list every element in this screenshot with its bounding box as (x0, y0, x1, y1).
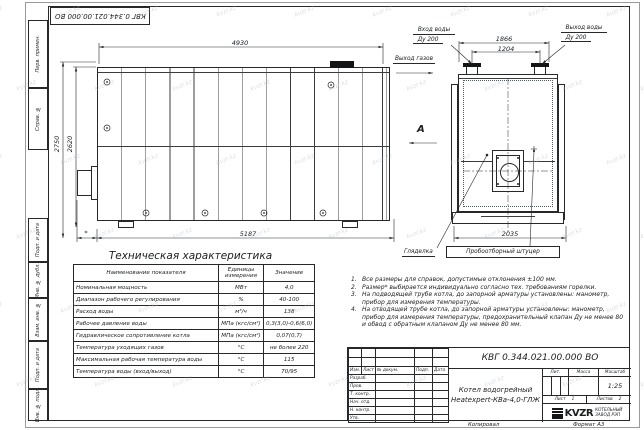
water-outlet-dn: Ду 200 (561, 35, 591, 43)
dim-burner-star: * (80, 229, 92, 237)
boiler-front-view (97, 67, 390, 221)
title-block-change-table: Изм. Лист № докум. Подп. Дата Разраб. Пр… (348, 348, 449, 423)
side-channel-right (558, 84, 565, 220)
margin-cell-perv-primen: Перв. примен. (28, 20, 48, 88)
gas-outlet-stub (330, 61, 354, 68)
note-2: 2.Размер* выбирается индивидуально согла… (351, 284, 625, 292)
margin-cell-inv-dubl: Инв. № дубл. (28, 262, 48, 298)
burner-mount-plate (77, 170, 92, 196)
note-3: 3.На подводящей трубе котла, до запорной… (351, 291, 625, 306)
dim-1204: 1204 (494, 45, 518, 53)
dim-2750: 2750 (53, 129, 61, 159)
copied-label: Копировал (468, 422, 499, 428)
format-label: Формат А3 (573, 422, 604, 428)
front-foot-left (118, 221, 134, 228)
doc-number: КВГ 0.344.021.00.000 ВО (449, 348, 631, 369)
note-4: 4.На отводящей трубе котла, до запорной … (351, 306, 625, 329)
title-block-right: Лит. Масса Масштаб 1:25 Лист1 Листов2 (543, 369, 631, 422)
view-a-letter: А (417, 124, 425, 135)
margin-cell-sprav-no: Справ. № (28, 88, 48, 150)
notes-list: 1.Все размеры для справок, допустимые от… (351, 276, 625, 329)
scale-label: Масштаб (599, 369, 631, 377)
spec-header-units: Единицы измерения (219, 265, 264, 282)
kvzr-logo-subtitle: КОТЕЛЬНЫЙ ЗАВОД РЭП (595, 408, 622, 418)
burner-opening-circle (500, 163, 519, 182)
spec-header-name: Наименование показателя (74, 265, 219, 282)
spec-row: Диапазон рабочего регулирования%40-100 (74, 294, 315, 306)
dim-2035: 2035 (496, 230, 524, 238)
spec-table-title: Техническая характеристика (73, 250, 308, 262)
dim-1866: 1866 (492, 35, 516, 43)
gas-outlet-label: Выход газов (393, 56, 435, 64)
dim-4930: 4930 (225, 39, 255, 47)
front-top-band (98, 72, 389, 73)
top-stamp-doc-number: КВГ 0.344.021.00.000 ВО (50, 7, 150, 25)
spec-row: Температура уходящих газов°Сне более 220 (74, 342, 315, 354)
title-block: Изм. Лист № докум. Подп. Дата Разраб. Пр… (347, 347, 630, 421)
spec-table: Наименование показателя Единицы измерени… (73, 264, 315, 378)
mass-label: Масса (569, 369, 599, 377)
kvzr-logo-text: KVZR (565, 408, 593, 419)
sight-glass-label: Гляделка (402, 249, 435, 257)
margin-cell-podp-data-2: Подп. и дата (28, 341, 48, 389)
sheets-cell: Листов2 (587, 396, 631, 404)
margin-cell-vzam-inv: Взам. инв. № (28, 298, 48, 341)
spec-row: Температура воды (вход/выход)°С70/95 (74, 366, 315, 378)
burner-mount-flange (91, 166, 98, 200)
spec-row: Расход водым³/ч138 (74, 306, 315, 318)
inlet-nozzle-pipe (466, 66, 478, 75)
outlet-nozzle-flange (531, 63, 549, 67)
drawing-sheet: Перв. примен. Справ. № Подп. и дата Инв.… (0, 0, 644, 430)
sampling-fitting-label: Пробоотборный штуцер (446, 246, 560, 258)
scale-value: 1:25 (599, 377, 631, 396)
spec-row: Гидравлическое сопротивление котлаМПа (к… (74, 330, 315, 342)
kvzr-logo-icon (552, 408, 563, 419)
side-channel-left (451, 84, 458, 220)
note-1: 1.Все размеры для справок, допустимые от… (351, 276, 625, 284)
spec-row: Рабочее давление водыМПа (кгс/см²)0,3(3,… (74, 318, 315, 330)
inlet-nozzle-flange (463, 63, 481, 67)
margin-cell-podp-data-1: Подп. и дата (28, 218, 48, 262)
dim-2620: 2620 (66, 129, 74, 159)
dim-5187: 5187 (228, 230, 268, 238)
side-base (452, 212, 564, 224)
spec-row: Максимальная рабочая температура воды°С1… (74, 354, 315, 366)
margin-cell-inv-podl: Инв. № подл. (28, 389, 48, 421)
front-foot-right (342, 221, 358, 228)
outlet-nozzle-pipe (534, 66, 546, 75)
spec-row: Номинальная мощностьМВт4,0 (74, 282, 315, 294)
side-top-cover-line (459, 78, 557, 79)
water-outlet-label: Выход воды (561, 25, 607, 33)
factory-logo: KVZR КОТЕЛЬНЫЙ ЗАВОД РЭП (543, 404, 631, 422)
front-rear-wall-line (382, 68, 383, 220)
lit-label: Лит. (543, 369, 569, 377)
sheet-cell: Лист1 (543, 396, 587, 404)
burner-flange-front (492, 150, 524, 192)
water-inlet-dn: Ду 200 (413, 37, 443, 45)
product-name: Котел водогрейный Heatexpert-КВа-4,0-ГЛЖ (449, 369, 543, 422)
water-inlet-label: Вход воды (413, 27, 455, 35)
front-mid-line (98, 146, 389, 147)
spec-header-value: Значение (264, 265, 315, 282)
